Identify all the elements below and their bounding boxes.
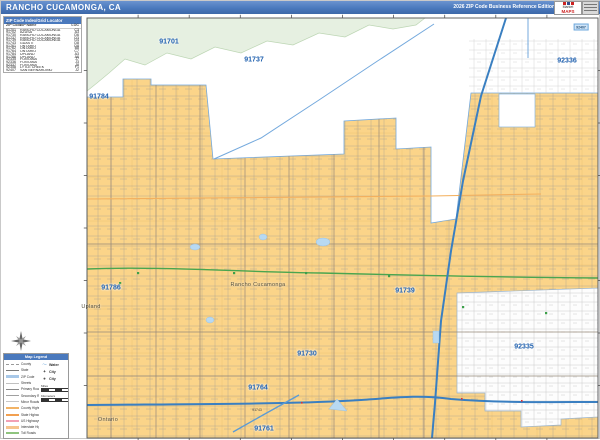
star-icon: ✦ — [41, 369, 48, 375]
legend-line-sample — [6, 407, 19, 409]
legend-symbol-row: 〜Water — [41, 361, 69, 368]
map-legend: Map Legend CountyStateZIP CodeStreetsPri… — [3, 353, 69, 439]
legend-symbol-row: ✦City — [41, 368, 69, 375]
water-icon: 〜 — [41, 362, 48, 368]
legend-line-sample — [6, 375, 19, 378]
col-zip-name: ZIP Name — [20, 24, 71, 28]
legend-road-label: Streets — [21, 381, 39, 385]
row-zip-name: SAN BERNARDINO — [20, 69, 71, 72]
map-sheet: { "header": { "title": "RANCHO CUCAMONGA… — [0, 0, 600, 439]
col-zip-code: ZIP Code — [6, 24, 20, 28]
legend-road-label: County Highways — [21, 406, 39, 410]
legend-line-sample — [6, 383, 19, 384]
title-bar: RANCHO CUCAMONGA, CA 2026 ZIP Code Busin… — [1, 1, 600, 14]
legend-road-label: ZIP Code — [21, 375, 39, 379]
map-info-box — [582, 1, 599, 15]
scale-bar-miles: Miles — [41, 384, 69, 392]
page-title: RANCHO CUCAMONGA, CA — [1, 3, 121, 12]
street-grid-topright — [469, 39, 598, 93]
legend-line-sample — [6, 370, 19, 371]
legend-line-sample — [6, 395, 19, 396]
legend-line-sample — [6, 426, 19, 429]
legend-road-label: US Highways — [21, 419, 39, 423]
index-table-body: 91701RANCHO CUCAMONGAC391702AZUSAA391730… — [4, 29, 81, 72]
scale-bar-km: Kilometers — [41, 394, 69, 402]
legend-road-label: Secondary Roads — [21, 394, 39, 398]
legend-road-label: County — [21, 362, 39, 366]
row-loc: J2 — [71, 69, 79, 72]
col-loc: LOC — [71, 24, 79, 28]
legend-road-row: Toll Roads — [6, 430, 39, 436]
legend-line-sample — [6, 432, 19, 434]
logo-brand: MAPS — [561, 10, 574, 15]
legend-road-list: CountyStateZIP CodeStreetsPrimary RoadsS… — [4, 360, 40, 437]
legend-symbol-label: City — [49, 370, 56, 374]
legend-line-sample — [6, 414, 19, 416]
legend-symbol-row: ●City — [41, 375, 69, 382]
legend-road-label: Toll Roads — [21, 431, 39, 435]
legend-symbol-label: City — [49, 377, 56, 381]
legend-line-sample — [6, 420, 19, 422]
legend-line-sample — [6, 389, 19, 390]
legend-road-label: Interstate Highways — [21, 425, 39, 429]
zip-index-table: ZIP Code Index/Grid Locator ZIP Code ZIP… — [3, 16, 82, 73]
compass-icon — [11, 331, 31, 351]
row-zip-code: 92407 — [6, 69, 20, 72]
map-canvas — [1, 1, 600, 440]
edition-label: 2026 ZIP Code Business Reference Edition — [453, 4, 555, 10]
legend-road-label: Primary Roads — [21, 387, 39, 391]
legend-symbol-label: Water — [49, 363, 59, 367]
legend-road-label: Minor Roads — [21, 400, 39, 404]
legend-symbol-list: 〜Water✦City●City — [41, 361, 69, 382]
legend-line-sample — [6, 401, 19, 402]
legend-road-label: State Highways — [21, 413, 39, 417]
zip-area-notch — [499, 94, 535, 127]
circle-icon: ● — [41, 376, 48, 381]
marketmaps-logo: Market MAPS — [554, 1, 582, 15]
legend-line-sample — [6, 364, 19, 365]
legend-road-label: State — [21, 368, 39, 372]
index-row: 92407SAN BERNARDINOJ2 — [4, 69, 81, 72]
